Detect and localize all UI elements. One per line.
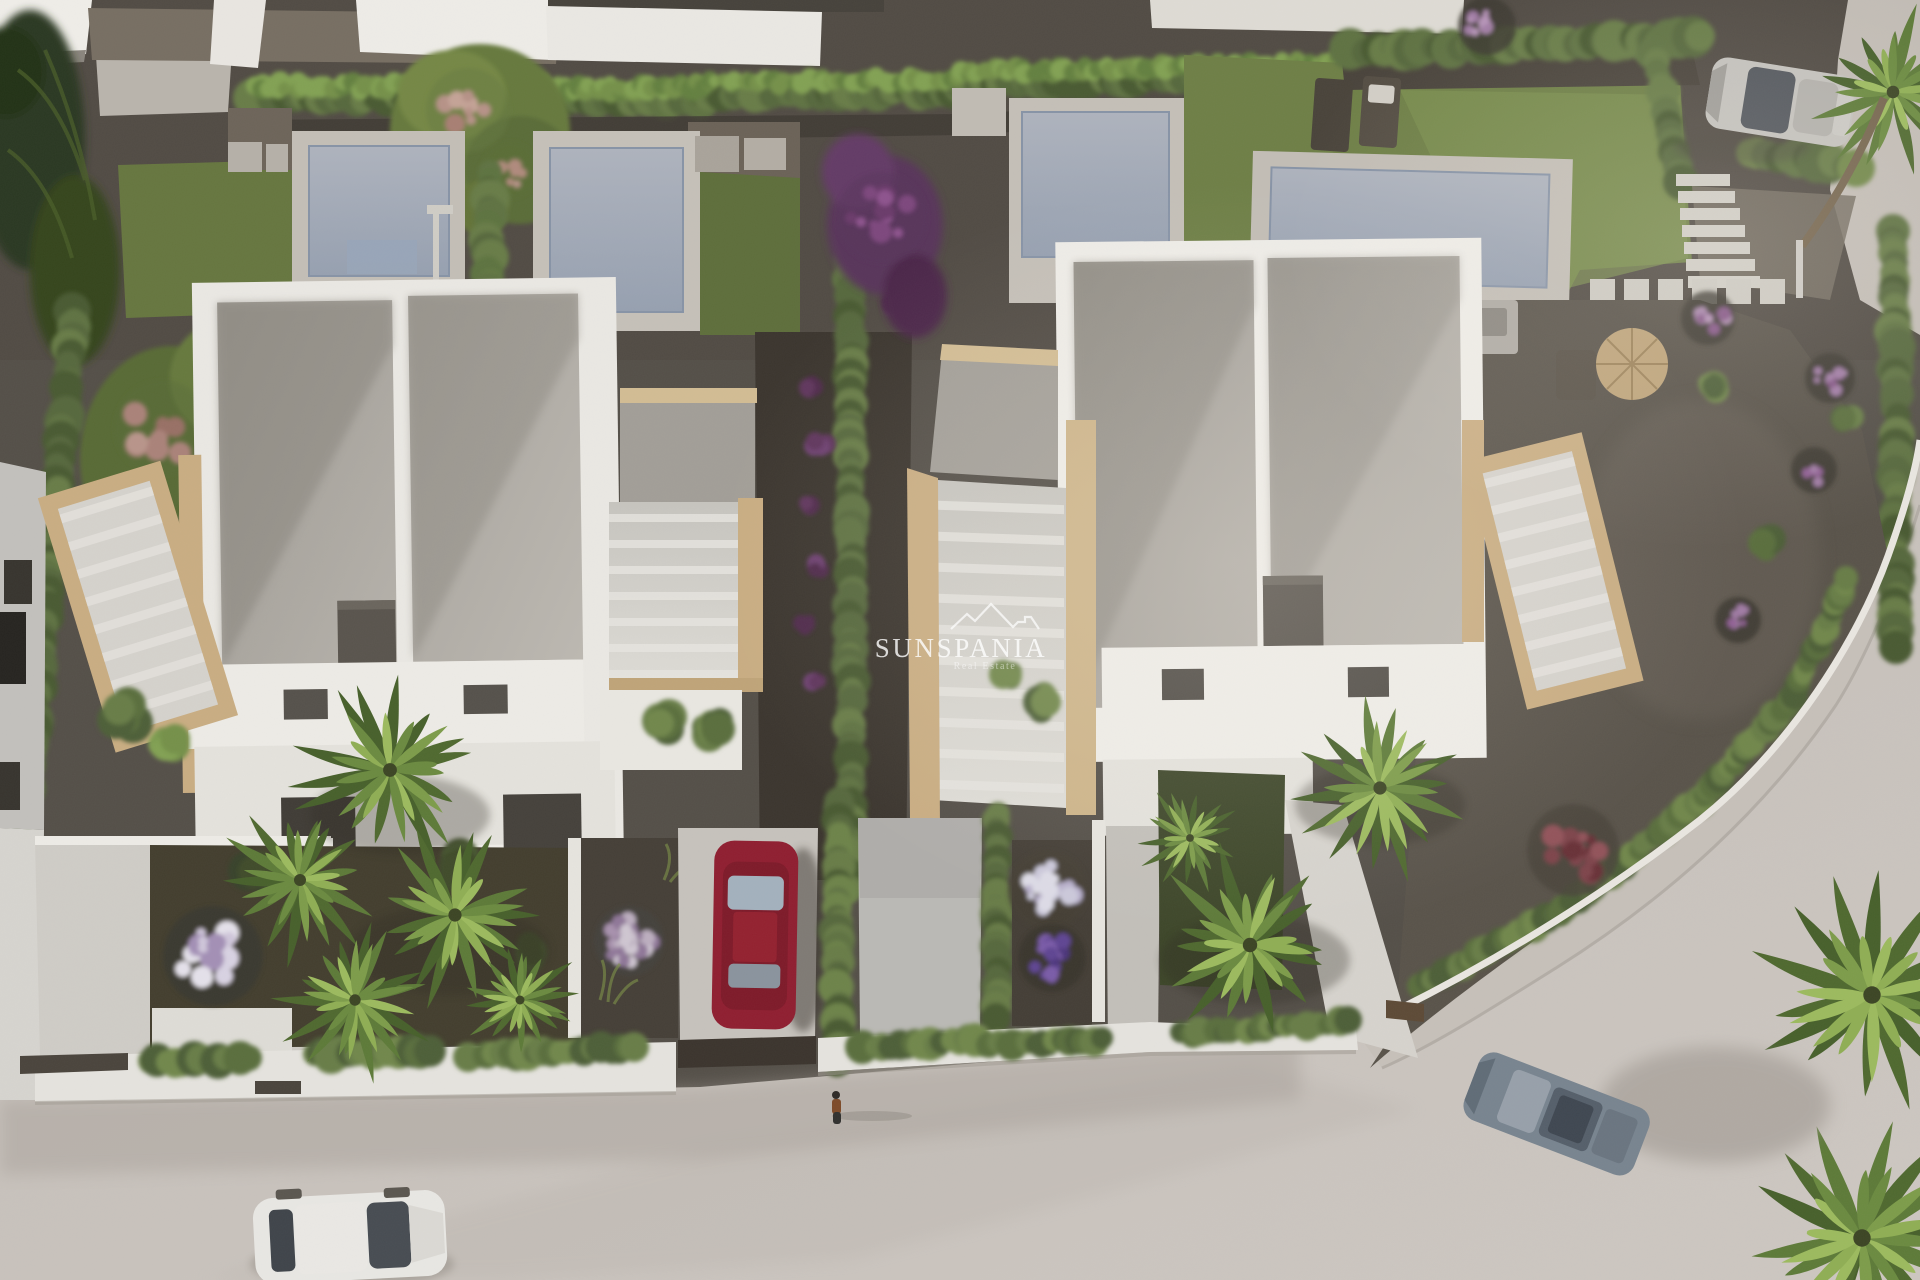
svg-text:Real Estate: Real Estate xyxy=(954,661,1017,672)
svg-text:SUNSPANIA: SUNSPANIA xyxy=(875,633,1047,663)
